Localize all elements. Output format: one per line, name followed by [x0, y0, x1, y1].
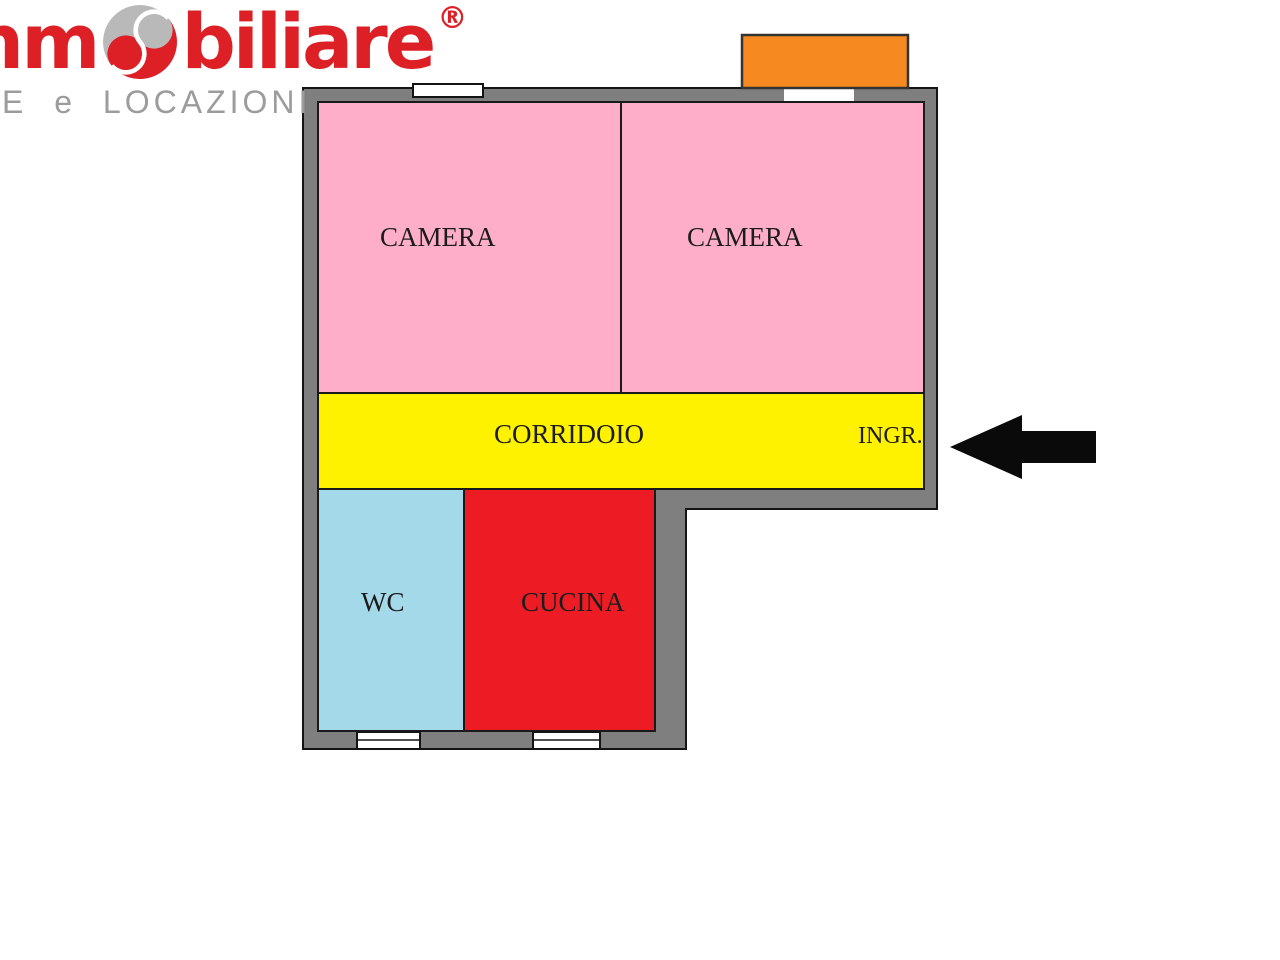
balcony [742, 35, 908, 88]
window-bottom-wc [357, 732, 420, 749]
room-label-camera-right: CAMERA [687, 222, 803, 253]
registered-trademark: ® [437, 4, 467, 34]
brand-logo: imm biliare ® [0, 2, 467, 82]
brand-tagline: E e LOCAZIONI [2, 84, 311, 121]
brand-logo-suffix: biliare [181, 2, 433, 82]
room-label-ingresso: INGR. [858, 423, 923, 450]
room-label-corridoio: CORRIDOIO [494, 419, 644, 450]
entrance-arrow-icon [950, 415, 1096, 479]
room-label-wc: WC [361, 587, 405, 618]
window-bottom-cucina [533, 732, 600, 749]
room-label-cucina: CUCINA [521, 587, 625, 618]
brand-swirl-o-icon [101, 3, 179, 81]
floorplan-drawing [0, 0, 1280, 960]
room-label-camera-left: CAMERA [380, 222, 496, 253]
brand-logo-prefix: imm [0, 2, 97, 82]
